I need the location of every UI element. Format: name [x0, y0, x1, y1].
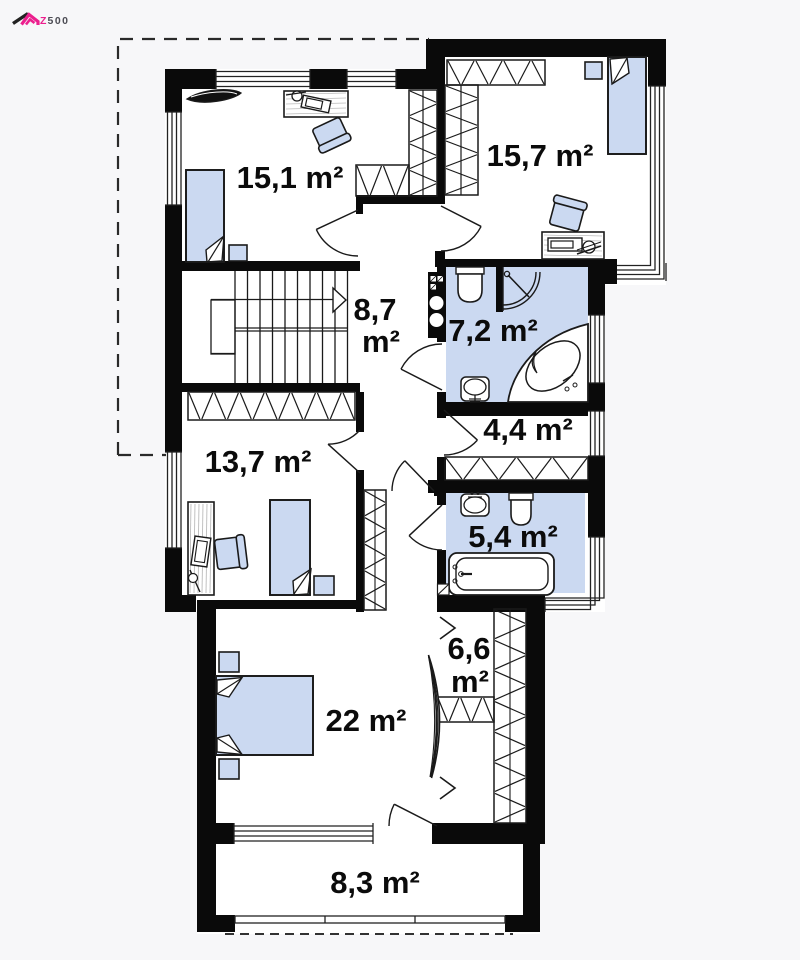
svg-text:4,4 m²: 4,4 m² [483, 412, 573, 447]
svg-text:15,7 m²: 15,7 m² [487, 138, 594, 173]
svg-text:22 m²: 22 m² [326, 703, 407, 738]
svg-text:m²: m² [451, 664, 489, 699]
svg-text:15,1 m²: 15,1 m² [237, 160, 344, 195]
svg-text:8,3 m²: 8,3 m² [330, 865, 420, 900]
svg-text:Z: Z [40, 15, 47, 27]
svg-text:6,6: 6,6 [447, 631, 490, 666]
svg-text:13,7 m²: 13,7 m² [205, 444, 312, 479]
svg-text:7,2 m²: 7,2 m² [448, 313, 538, 348]
svg-text:m²: m² [362, 324, 400, 359]
svg-text:500: 500 [48, 15, 70, 27]
svg-text:5,4 m²: 5,4 m² [468, 519, 558, 554]
svg-text:8,7: 8,7 [353, 292, 396, 327]
